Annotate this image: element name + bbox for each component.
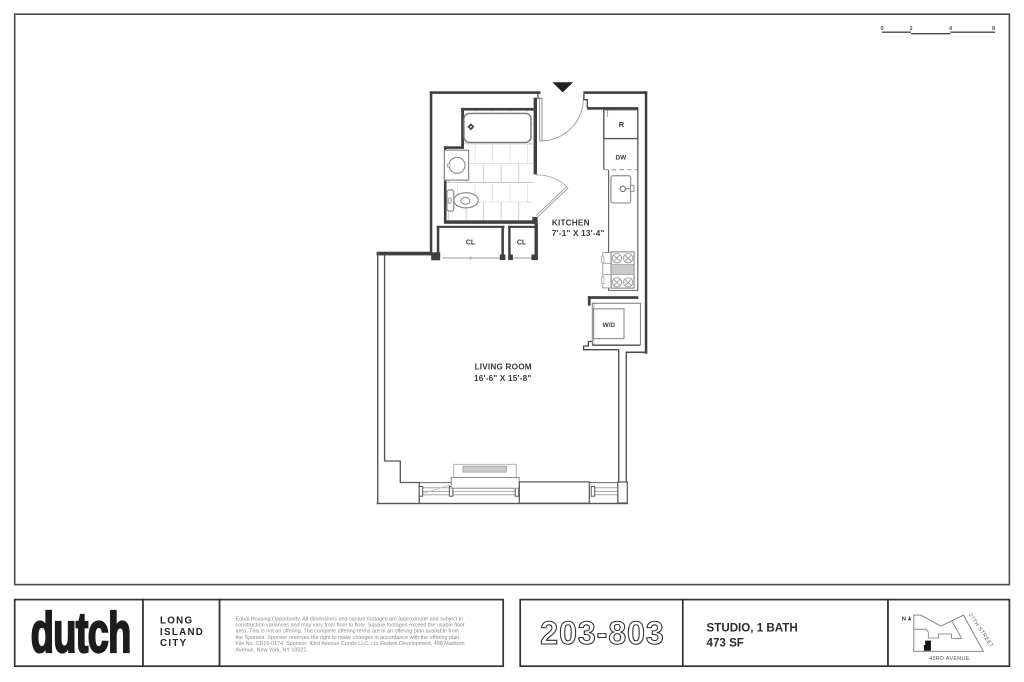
svg-text:7'-1" X 13'-4": 7'-1" X 13'-4": [552, 229, 605, 238]
svg-text:8: 8: [992, 26, 995, 32]
svg-text:203-803: 203-803: [540, 615, 664, 651]
svg-text:LONG: LONG: [160, 616, 193, 627]
svg-text:16'-6" X 15'-8": 16'-6" X 15'-8": [474, 374, 531, 383]
svg-text:473 SF: 473 SF: [707, 636, 744, 649]
svg-text:STUDIO, 1 BATH: STUDIO, 1 BATH: [707, 622, 798, 635]
svg-text:Avenue, New York, NY 10022.: Avenue, New York, NY 10022.: [236, 647, 308, 653]
svg-text:R: R: [619, 120, 625, 129]
svg-text:ISLAND: ISLAND: [160, 627, 204, 638]
svg-text:area. This is not an offering.: area. This is not an offering. The compl…: [236, 629, 460, 635]
svg-text:File No. CD15-0174. Sponsor: 4: File No. CD15-0174. Sponsor: 43rd Avenue…: [236, 641, 465, 647]
svg-text:W/D: W/D: [603, 322, 616, 329]
svg-text:DW: DW: [615, 155, 627, 162]
svg-text:2: 2: [909, 26, 912, 32]
svg-text:dutch: dutch: [31, 601, 131, 665]
svg-text:CL: CL: [517, 240, 527, 247]
svg-text:0: 0: [880, 26, 883, 32]
svg-text:CITY: CITY: [160, 638, 187, 649]
svg-text:construction variances and may: construction variances and may vary from…: [236, 623, 465, 629]
svg-text:LIVING ROOM: LIVING ROOM: [475, 363, 532, 372]
svg-text:Equal Housing Opportunity. All: Equal Housing Opportunity. All dimension…: [236, 616, 464, 622]
svg-text:the Sponsor. Sponsor reserves: the Sponsor. Sponsor reserves the right …: [236, 635, 461, 641]
svg-text:CL: CL: [466, 239, 476, 246]
svg-text:KITCHEN: KITCHEN: [552, 219, 590, 228]
svg-text:43RD AVENUE: 43RD AVENUE: [929, 656, 970, 662]
svg-text:N: N: [902, 617, 906, 623]
